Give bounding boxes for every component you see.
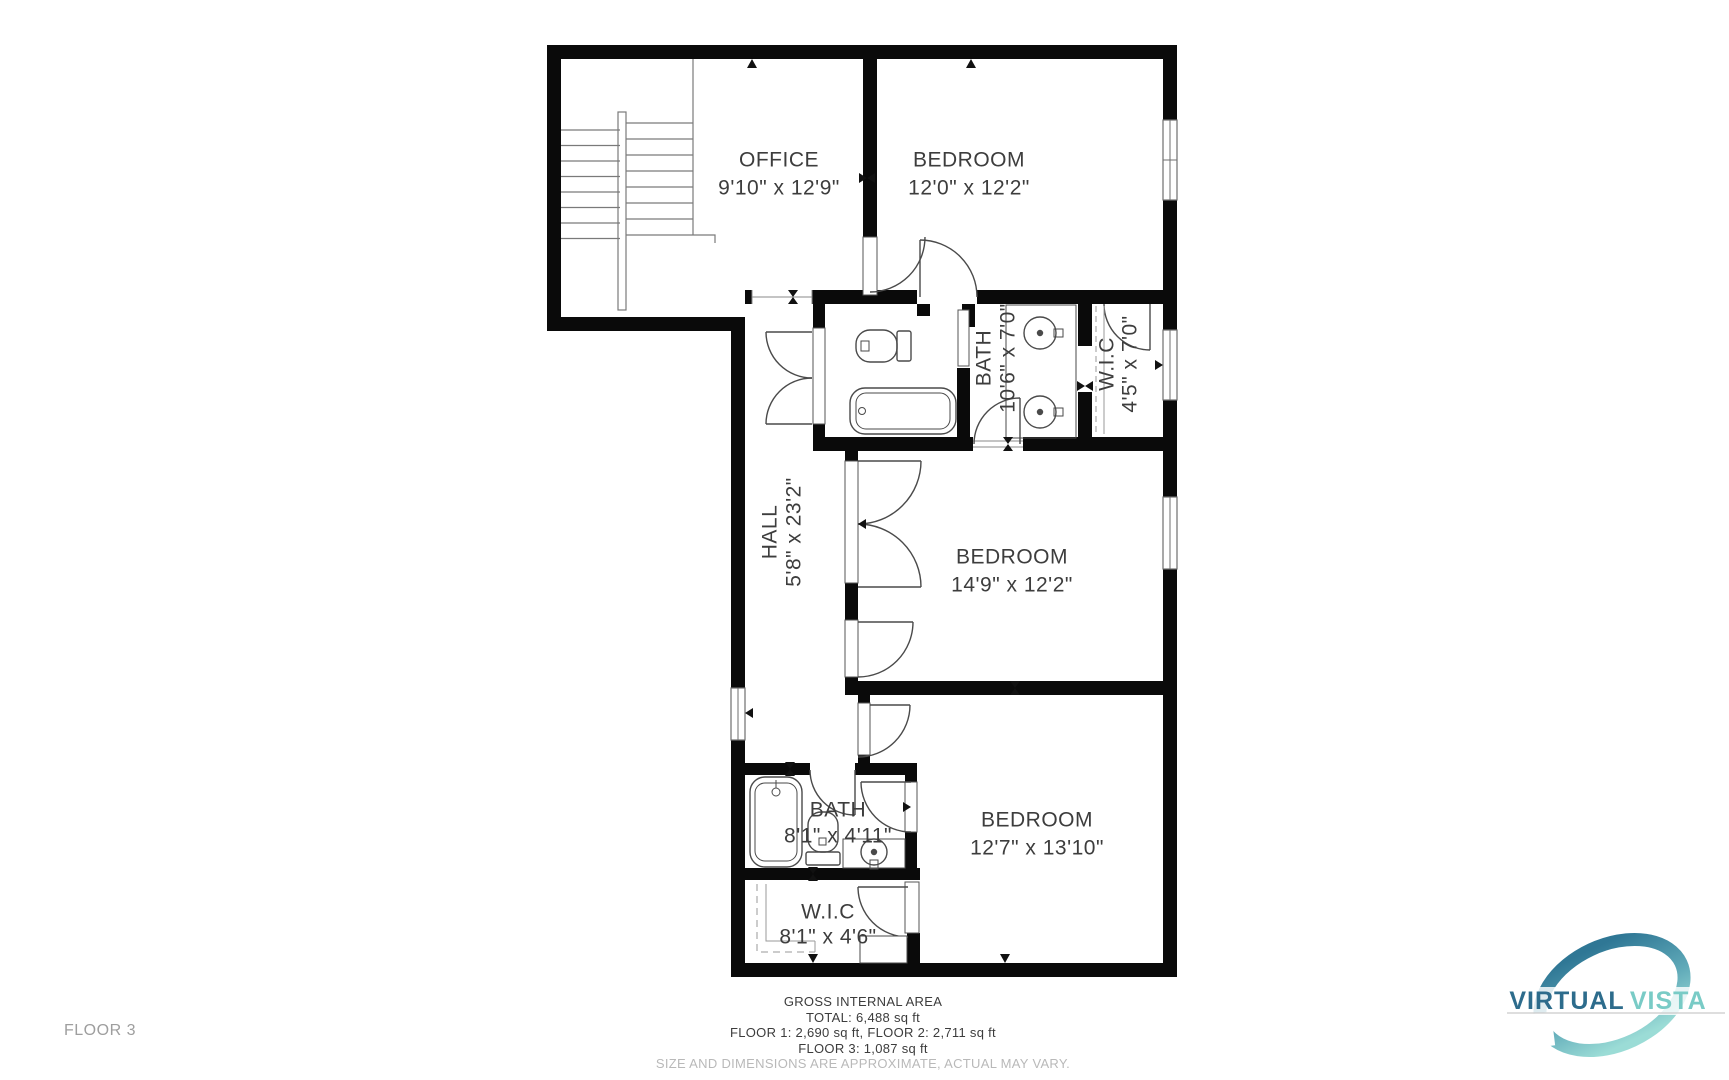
room-bedroom-bottom-dims: 12'7" x 13'10" (970, 837, 1104, 860)
window-wic-top (1163, 330, 1177, 400)
opening-hall-top (752, 290, 812, 304)
toilet-icon-top (856, 330, 911, 362)
window-bedroom-top (1163, 120, 1177, 200)
fixtures (750, 305, 1104, 963)
room-hall: HALL 5'8" x 23'2" (759, 477, 806, 587)
floor-plan-drawing: OFFICE 9'10" x 12'9" BEDROOM 12'0" x 12'… (0, 0, 1729, 1080)
logo-word-virtual: VIRTUAL (1509, 987, 1623, 1015)
room-labels: OFFICE 9'10" x 12'9" BEDROOM 12'0" x 12'… (718, 149, 1141, 949)
room-bath-top-name: BATH (973, 330, 996, 386)
svg-text:VIRTUALVISTA: VIRTUALVISTA (1509, 987, 1706, 1015)
room-wic-top: W.I.C 4'5" x 7'0" (1096, 315, 1142, 412)
window-bedroom-mid (1163, 497, 1177, 569)
size-disclaimer: SIZE AND DIMENSIONS ARE APPROXIMATE, ACT… (613, 1056, 1113, 1072)
staircase (561, 59, 715, 310)
area-total: TOTAL: 6,488 sq ft (613, 1010, 1113, 1026)
area-floors-1-2: FLOOR 1: 2,690 sq ft, FLOOR 2: 2,711 sq … (613, 1025, 1113, 1041)
opening-bedroom-mid-top (973, 441, 1023, 447)
bathtub-icon-bottom (750, 777, 802, 867)
floorplan-page: OFFICE 9'10" x 12'9" BEDROOM 12'0" x 12'… (0, 0, 1729, 1080)
room-bath-bottom-dims: 8'1" x 4'11" (784, 825, 892, 848)
door-hall-double (766, 328, 825, 424)
room-hall-dims: 5'8" x 23'2" (783, 477, 806, 587)
door-office (863, 237, 925, 295)
room-office-dims: 9'10" x 12'9" (718, 177, 840, 200)
logo-swoosh-icon: VIRTUALVISTA (1495, 925, 1729, 1075)
room-wic-bottom-dims: 8'1" x 4'6" (779, 926, 876, 949)
room-wic-top-dims: 4'5" x 7'0" (1119, 315, 1142, 412)
room-bedroom-bottom-name: BEDROOM (981, 809, 1093, 832)
room-office-name: OFFICE (739, 149, 819, 172)
room-bedroom-top: BEDROOM 12'0" x 12'2" (908, 149, 1030, 200)
door-bath-top-partition (958, 310, 969, 366)
room-office: OFFICE 9'10" x 12'9" (718, 149, 840, 200)
logo-word-vista: VISTA (1630, 987, 1707, 1015)
room-bath-bottom-name: BATH (810, 799, 866, 822)
room-bedroom-mid-name: BEDROOM (956, 546, 1068, 569)
room-bedroom-top-name: BEDROOM (913, 149, 1025, 172)
area-floor-3: FLOOR 3: 1,087 sq ft (613, 1041, 1113, 1057)
room-bedroom-top-dims: 12'0" x 12'2" (908, 177, 1030, 200)
room-wic-bottom-name: W.I.C (801, 901, 855, 924)
area-title: GROSS INTERNAL AREA (613, 994, 1113, 1010)
room-bedroom-mid: BEDROOM 14'9" x 12'2" (951, 546, 1073, 597)
room-bath-top-dims: 10'6" x 7'0" (997, 303, 1020, 413)
gross-internal-area-block: GROSS INTERNAL AREA TOTAL: 6,488 sq ft F… (613, 994, 1113, 1072)
door-bedroom-mid-double (845, 461, 921, 587)
door-hall-bedroom-bottom (858, 703, 910, 757)
virtual-vista-logo: VIRTUALVISTA (1495, 925, 1729, 1075)
floor-number-label: FLOOR 3 (64, 1022, 136, 1040)
room-bath-top: BATH 10'6" x 7'0" (973, 303, 1020, 413)
door-bedroom-top (920, 240, 977, 297)
door-hall-bedroom-mid (845, 620, 913, 677)
room-hall-name: HALL (759, 505, 782, 560)
room-bedroom-mid-dims: 14'9" x 12'2" (951, 574, 1073, 597)
window-hall (731, 688, 745, 740)
bathtub-icon-top (850, 388, 956, 434)
windows (731, 120, 1177, 740)
room-bedroom-bottom: BEDROOM 12'7" x 13'10" (970, 809, 1104, 860)
room-wic-top-name: W.I.C (1096, 337, 1119, 391)
